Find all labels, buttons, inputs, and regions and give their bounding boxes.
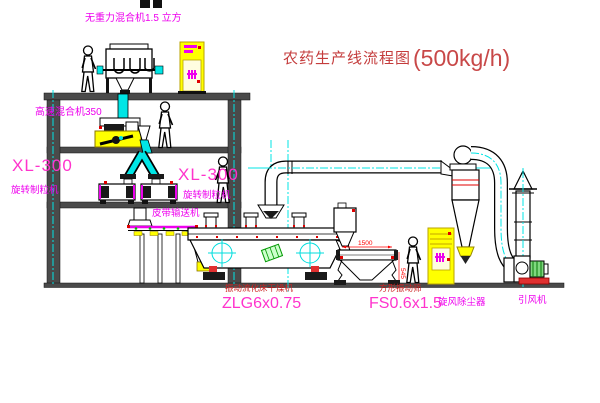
label-granulator-right-model: XL-300: [178, 166, 239, 183]
y-splitter-chute: [120, 153, 164, 179]
diagram-title-capacity: (500kg/h): [413, 47, 510, 70]
label-dryer-name: 振动流化床干燥机: [225, 284, 293, 293]
label-sieve-model: FS0.6x1.5: [369, 296, 442, 312]
induced-draft-fan: [504, 256, 549, 284]
diagram-title: 农药生产线流程图 (500kg/h): [283, 47, 510, 70]
flow-diagram-canvas: 1500 545 农药生产线流程图 (500kg/h) 无重力混合机1.5 立方…: [0, 0, 600, 403]
label-belt-conveyor: 皮带输送机: [152, 209, 200, 219]
control-cabinet-ground: [428, 228, 454, 284]
mixer-downcomer-chute: [118, 94, 128, 118]
worker-figure-top-floor: [82, 46, 96, 92]
granulator-discharge-chute: [128, 208, 152, 226]
vibrating-sieve: 1500 545: [334, 203, 406, 285]
diagram-title-text: 农药生产线流程图: [283, 51, 411, 66]
control-cabinet-top: [178, 42, 206, 94]
fluid-bed-dryer: [188, 213, 352, 280]
label-granulator-left-model: XL-300: [12, 157, 73, 174]
worker-figure-ground: [407, 237, 421, 283]
label-granulator-right-name: 旋转制粒机: [183, 191, 231, 201]
label-cyclone: 旋风除尘器: [438, 298, 486, 308]
label-high-speed-mixer: 高速混合机350: [35, 108, 102, 118]
granulator-right: [141, 179, 177, 204]
label-fan: 引风机: [518, 296, 547, 306]
svg-text:545: 545: [399, 268, 406, 279]
label-granulator-left-name: 旋转制粒机: [11, 186, 59, 196]
label-gravity-mixer: 无重力混合机1.5 立方: [85, 14, 182, 24]
label-sieve-name: 方形振动筛: [379, 284, 422, 293]
ground-line: [44, 283, 564, 288]
svg-text:1500: 1500: [358, 240, 373, 247]
label-dryer-model: ZLG6x0.75: [222, 296, 301, 312]
granulator-left: [99, 179, 135, 204]
worker-figure-second-floor: [159, 102, 173, 148]
